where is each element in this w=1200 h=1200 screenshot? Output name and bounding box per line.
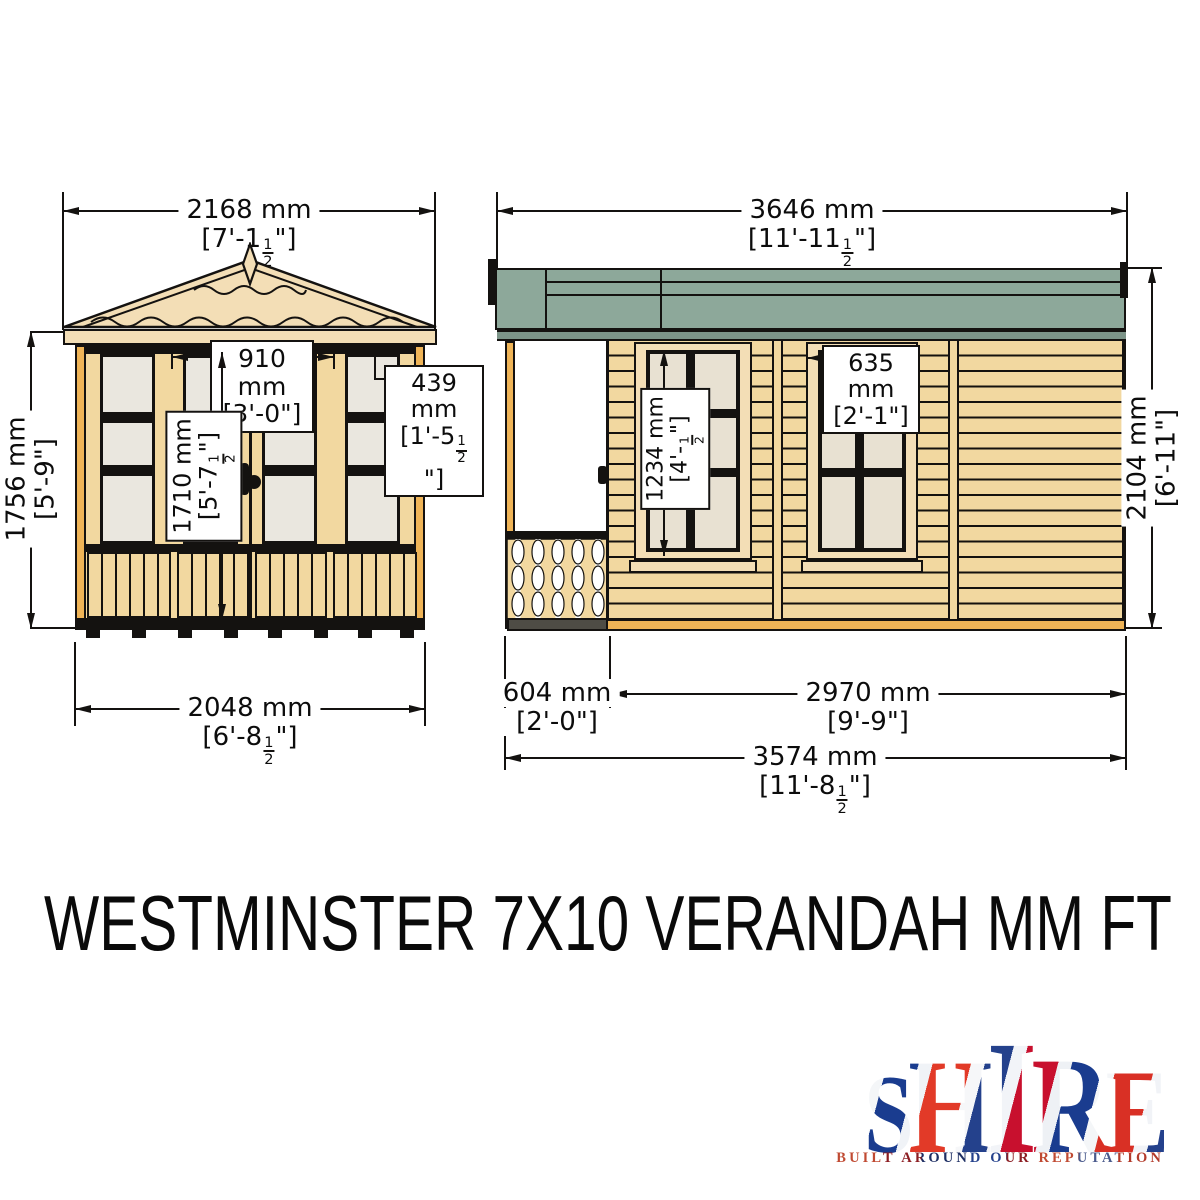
dim-mm: 910 mm [238,344,287,401]
dim-mm: 1234 mm [644,396,668,502]
arrowhead-icon [660,350,668,366]
dim-mm: 1710 mm [169,418,195,533]
verandah-deck-edge [507,618,608,631]
dim-ft: [2'-0"] [495,708,620,736]
window-sill [801,560,923,573]
arrowhead-icon [1148,613,1156,629]
verandah-handrail [507,531,608,539]
dim-side-window-width: 635 mm [2'-1"] [822,345,920,434]
dim-front-door-height: 1710 mm [5'-712"] [165,410,242,541]
dim-mm: 3574 mm [744,743,885,771]
floor-bearer [400,630,414,638]
dim-ft: [5'-712"] [196,418,239,533]
boarded-panel [87,552,171,618]
extension-line [1125,636,1127,770]
front-roof-gable [55,242,445,330]
dim-side-window-height: 1234 mm [4'-12"] [640,388,710,510]
verandah-balustrade [507,539,608,619]
roof-joint-line [545,268,547,330]
floor-bearer [314,630,328,638]
extension-line [74,642,76,726]
dim-side-wall-height: 2104 mm [6'-11"] [1121,389,1182,526]
dim-side-overall-width: 3646 mm [11'-1112"] [741,196,882,269]
roof-underside [497,330,1126,341]
side-roof [495,268,1126,330]
roof-board-line [546,294,1124,296]
arrowhead-icon [660,540,668,556]
dim-ft: [6'-812"] [179,723,320,767]
dim-front-eaves-height: 1756 mm [5'-9"] [0,410,61,547]
corner-trim [77,347,86,618]
arrowhead-icon [27,613,35,629]
arrowhead-icon [1148,267,1156,283]
dim-ft: [6'-11"] [1152,395,1181,520]
dim-mm: 2048 mm [179,694,320,722]
dim-side-base-depth: 3574 mm [11'-812"] [744,743,885,816]
floor-bearer [132,630,146,638]
dim-front-window-width: 439 mm [1'-512"] [384,365,484,497]
arrowhead-icon [409,705,425,713]
dim-mm: 2168 mm [178,196,319,224]
extension-line [1126,627,1162,629]
arrowhead-icon [318,353,334,361]
dim-mm: 1756 mm [2,416,31,541]
arrowhead-icon [1111,207,1127,215]
floor-bearer [86,630,100,638]
dim-ft: [11'-812"] [744,772,885,816]
arrowhead-icon [63,207,79,215]
dim-mm: 2970 mm [797,679,938,707]
wall-stud-trim [948,341,959,619]
boarded-panel [333,552,417,618]
window-sill [629,560,757,573]
dim-ft: [4'-12"] [668,396,705,502]
dim-mm: 2104 mm [1123,395,1152,520]
dim-ft: [2'-1"] [833,402,909,430]
arrowhead-icon [172,353,188,361]
floor-bearer [358,630,372,638]
roof-board-line [546,281,1124,283]
boarded-panel [177,552,249,618]
drawing-title: WESTMINSTER 7X10 VERANDAH MM FT [44,877,1172,971]
extension-line [31,627,75,629]
arrowhead-icon [218,352,226,368]
wall-stud-trim [772,341,783,619]
arrowhead-icon [807,354,823,362]
leader-line [374,352,376,380]
logo-tagline: BUILT AROUND OUR REPUTATION [836,1150,1164,1167]
dim-mm: 439 mm [411,369,458,423]
dim-ft: [1'-512"] [400,422,468,493]
arrowhead-icon [75,705,91,713]
arrowhead-icon [1110,754,1126,762]
dim-ft: [5'-9"] [31,416,60,541]
dim-ft: [11'-1112"] [741,225,882,269]
front-window-left [100,354,155,544]
extension-line [1128,267,1162,269]
dim-side-body-depth: 2970 mm [9'-9"] [797,679,938,736]
dim-mm: 3646 mm [741,196,882,224]
floor-bearer [268,630,282,638]
arrowhead-icon [218,604,226,620]
dim-side-verandah-depth: 604 mm [2'-0"] [495,679,620,736]
arrowhead-icon [1110,690,1126,698]
arrowhead-icon [27,331,35,347]
technical-drawing-canvas: 2168 mm [7'-112"] [0,0,1200,1200]
extension-line [31,331,63,333]
arrowhead-icon [419,207,435,215]
door-knob [247,475,261,489]
boarded-panel [255,552,327,618]
dim-mm: 604 mm [495,679,620,707]
floor-edge [606,619,1126,631]
arrowhead-icon [497,207,513,215]
floor-bearer [224,630,238,638]
floor-bearer [178,630,192,638]
extension-line [1126,192,1128,268]
dim-mm: 635 mm [848,349,895,403]
extension-line [424,642,426,726]
roof-joint-line [660,268,662,330]
roof-end-cap [1120,262,1128,298]
dim-front-base-width: 2048 mm [6'-812"] [179,694,320,767]
extension-line [496,192,498,268]
dim-ft: [9'-9"] [797,708,938,736]
arrowhead-icon [505,754,521,762]
